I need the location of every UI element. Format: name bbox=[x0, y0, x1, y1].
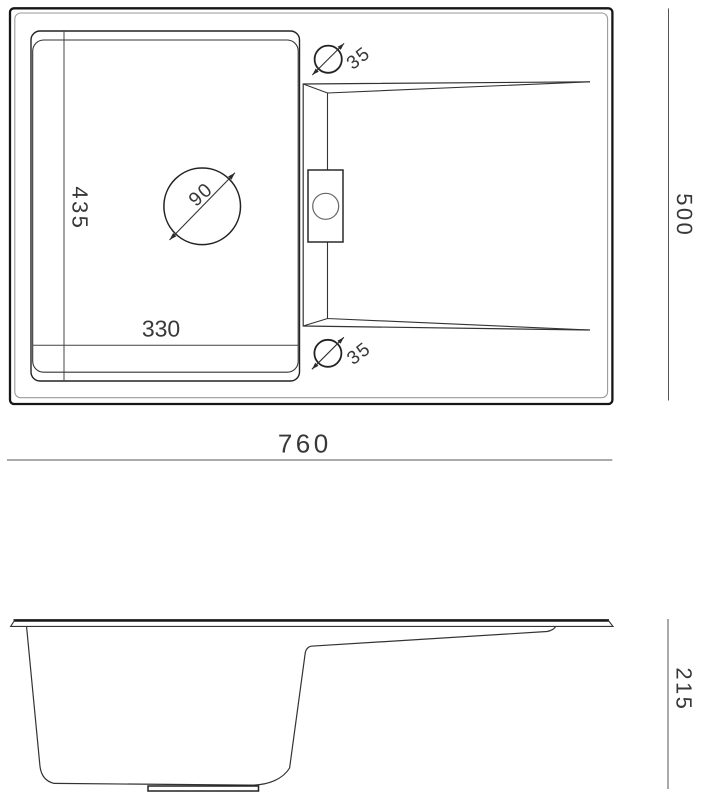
svg-text:330: 330 bbox=[142, 316, 180, 342]
svg-text:215: 215 bbox=[672, 667, 697, 711]
svg-text:500: 500 bbox=[672, 193, 697, 237]
svg-text:760: 760 bbox=[278, 428, 332, 458]
svg-text:435: 435 bbox=[68, 186, 93, 230]
